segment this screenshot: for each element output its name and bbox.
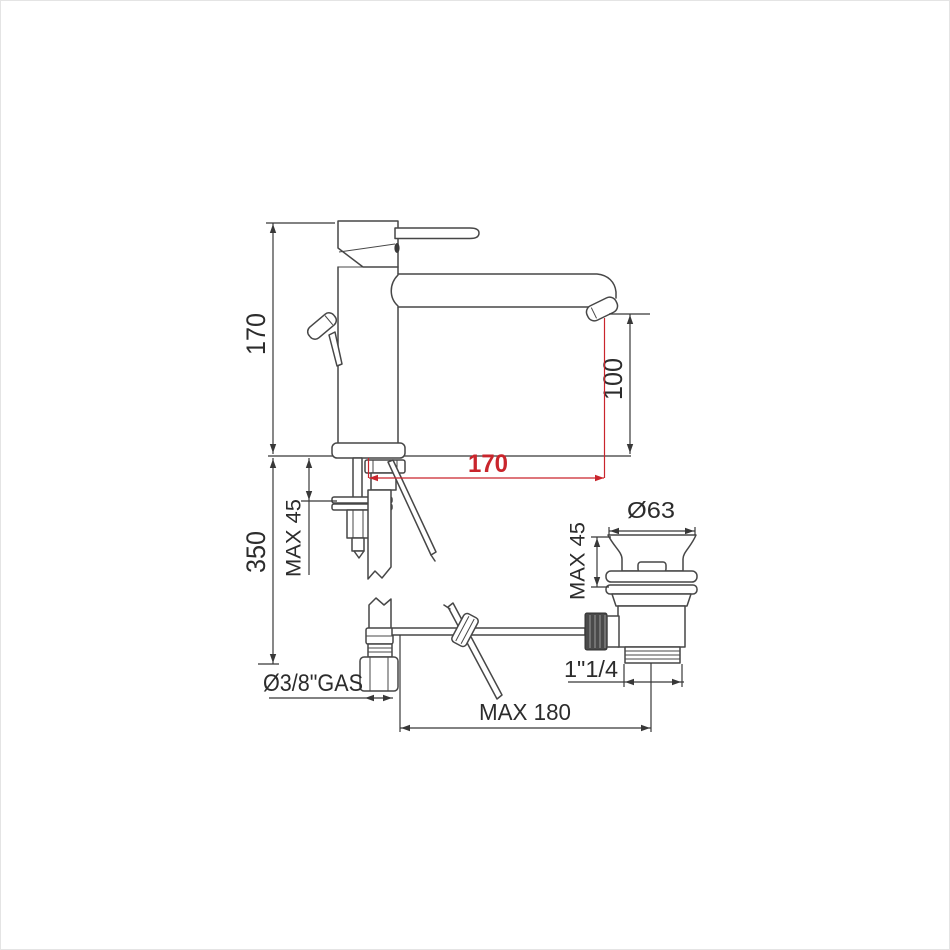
base-flange [332,443,405,458]
pop-up-knob [305,310,342,366]
horizontal-rod [392,628,585,635]
dim-under-counter: 350 [241,458,279,664]
fixing-nut [347,510,369,558]
dim-label-under-counter: 350 [241,531,271,573]
dim-outlet-height: 100 [598,314,650,454]
mounting-hardware [332,458,436,691]
dim-rod-reach: MAX 180 [400,635,651,732]
dim-label-deck-thickness: MAX 45 [283,499,306,577]
dim-label-waste-cap-diameter: Ø63 [627,497,675,523]
technical-drawing-page: 170 350 MAX 45 100 Ø63 [0,0,950,950]
spout-aerator [584,295,620,323]
dim-label-total-height: 170 [241,313,271,355]
waste-flange-lower [606,585,697,594]
rod-linkage [392,603,585,699]
waste-flange-upper [606,571,697,582]
dim-waste-cap-diameter: Ø63 [609,497,695,535]
dim-label-rod-reach: MAX 180 [479,699,571,725]
ball-joint-nut [585,613,619,650]
hose-hex-nut [360,657,398,691]
dim-label-supply-connection: Ø3/8"GAS [263,670,363,697]
popup-waste-assembly [585,535,697,663]
handle-pivot-dot [394,243,399,253]
waste-collar [612,594,691,606]
dim-label-outlet-height: 100 [598,358,628,400]
ball-joint-ring [607,616,619,647]
dim-total-height: 170 [241,223,335,454]
hose-thread-stub [368,644,392,657]
faucet-head [338,221,398,267]
dim-label-waste-thread: 1"1/4 [564,656,618,682]
waste-body [618,606,685,647]
dim-label-waste-clamp: MAX 45 [567,522,590,600]
lift-rod-tip [431,555,435,561]
faucet-handle [395,228,479,239]
waste-thread-outlet [625,647,680,663]
lift-rod-upper [388,460,436,555]
faucet-dimension-drawing: 170 350 MAX 45 100 Ø63 [1,1,949,949]
dim-waste-clamp: MAX 45 [567,522,611,600]
faucet [305,221,620,458]
faucet-spout [391,274,620,323]
faucet-body-fill [338,267,398,443]
dim-deck-thickness: MAX 45 [283,458,337,577]
dim-label-spout-reach: 170 [468,450,508,478]
